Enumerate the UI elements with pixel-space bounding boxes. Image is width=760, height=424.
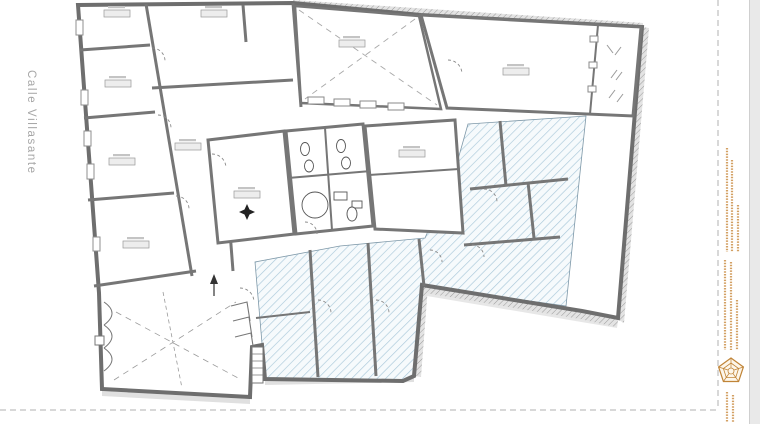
stair-ladder	[252, 347, 263, 383]
bathroom-block	[286, 124, 373, 234]
street-label: Calle Villasante	[25, 70, 37, 175]
middle-room	[365, 120, 463, 233]
top-right-wing	[421, 15, 641, 116]
sheet-edge	[750, 0, 760, 424]
floor-plan-drawing: Calle Villasante	[0, 0, 760, 424]
courtyard	[295, 6, 441, 110]
plan-sheet: Calle Villasante	[0, 0, 760, 424]
